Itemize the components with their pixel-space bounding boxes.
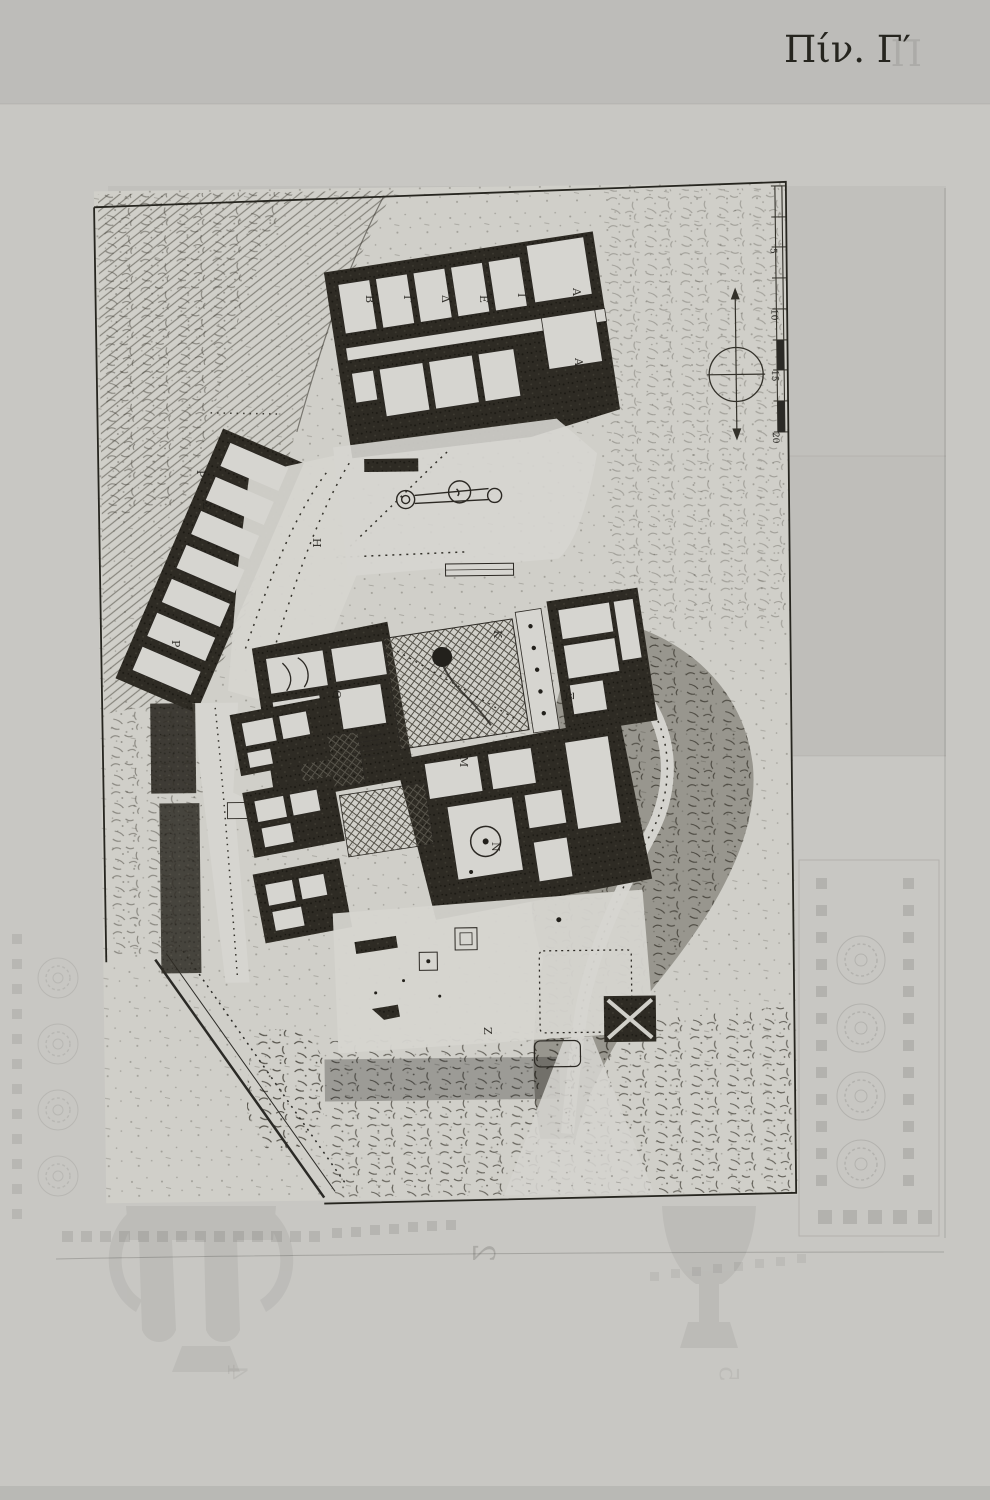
terrain-upper-right <box>602 188 787 630</box>
room-label: Ρ <box>169 640 182 648</box>
room-label: Ε <box>477 295 490 303</box>
scale-tick-label: 15 <box>769 370 779 382</box>
room-label: Δ <box>439 295 452 303</box>
bottom-edge-shadow <box>0 1486 990 1500</box>
scale-tick-label: 20 <box>770 432 780 444</box>
room-label: Μ <box>457 756 470 767</box>
room-label: Η <box>310 538 323 548</box>
engraved-plate: 5 10 15 20 <box>94 182 798 1206</box>
room-label: Γ <box>401 295 414 303</box>
plate-canvas: 5 10 15 20 Β Γ Δ Ε Ι Α Α Η Ρ Σ Ρ Θ Κ Μ Ν… <box>0 0 990 1500</box>
hatched-court-2 <box>339 783 433 857</box>
scale-tick-label: 5 <box>768 248 778 254</box>
room-label: Α <box>570 287 583 297</box>
room-label: Β <box>363 295 376 303</box>
scale-tick-label: 10 <box>768 309 778 321</box>
bleed-digit: 4 <box>221 1363 251 1380</box>
bleed-digit: 5 <box>713 1365 743 1382</box>
room-label: Θ <box>330 690 343 699</box>
scanned-book-page: 5 10 15 20 Β Γ Δ Ε Ι Α Α Η Ρ Σ Ρ Θ Κ Μ Ν… <box>0 0 990 1500</box>
room-label: Ι <box>515 293 528 297</box>
room-label: Ν <box>489 842 502 852</box>
bleed-ghost-letter: Π <box>891 34 922 75</box>
room-label: Σ <box>200 502 213 510</box>
room-label: Ρ <box>194 470 207 478</box>
room-label: Ξ <box>563 692 576 700</box>
room-label: Κ <box>491 630 504 639</box>
room-label: Ζ <box>481 1027 494 1035</box>
bleed-digit: 2 <box>465 1243 500 1262</box>
room-label: Α <box>572 357 585 367</box>
